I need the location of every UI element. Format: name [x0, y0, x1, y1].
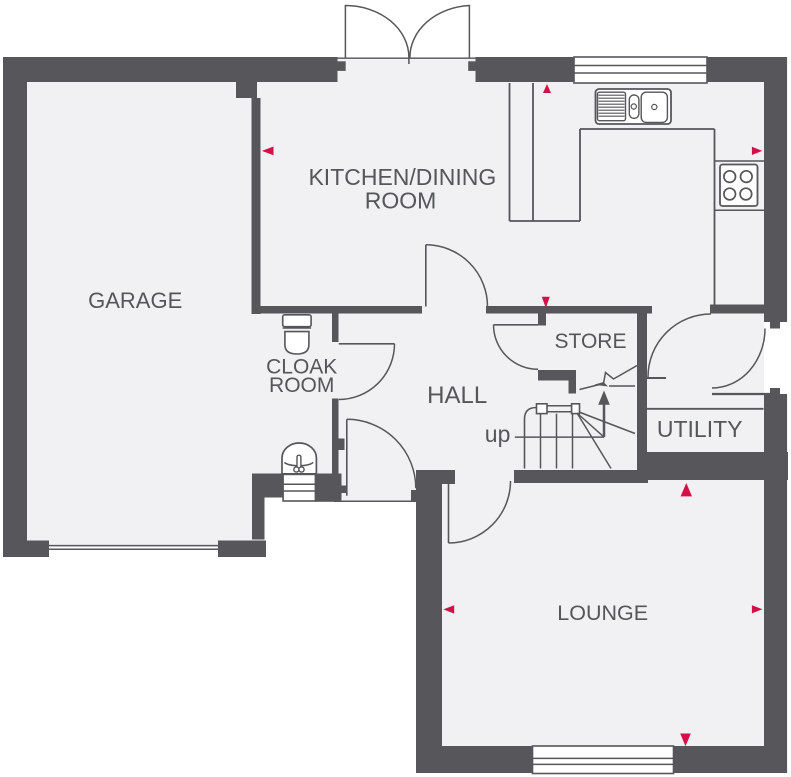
- svg-text:LOUNGE: LOUNGE: [557, 601, 648, 625]
- svg-text:GARAGE: GARAGE: [88, 288, 182, 313]
- svg-text:STORE: STORE: [555, 330, 627, 353]
- svg-text:KITCHEN/DINING: KITCHEN/DINING: [308, 164, 496, 190]
- svg-text:up: up: [485, 421, 511, 447]
- svg-text:ROOM: ROOM: [269, 374, 334, 397]
- svg-text:UTILITY: UTILITY: [657, 416, 743, 442]
- svg-text:ROOM: ROOM: [365, 187, 437, 213]
- svg-text:HALL: HALL: [427, 382, 487, 409]
